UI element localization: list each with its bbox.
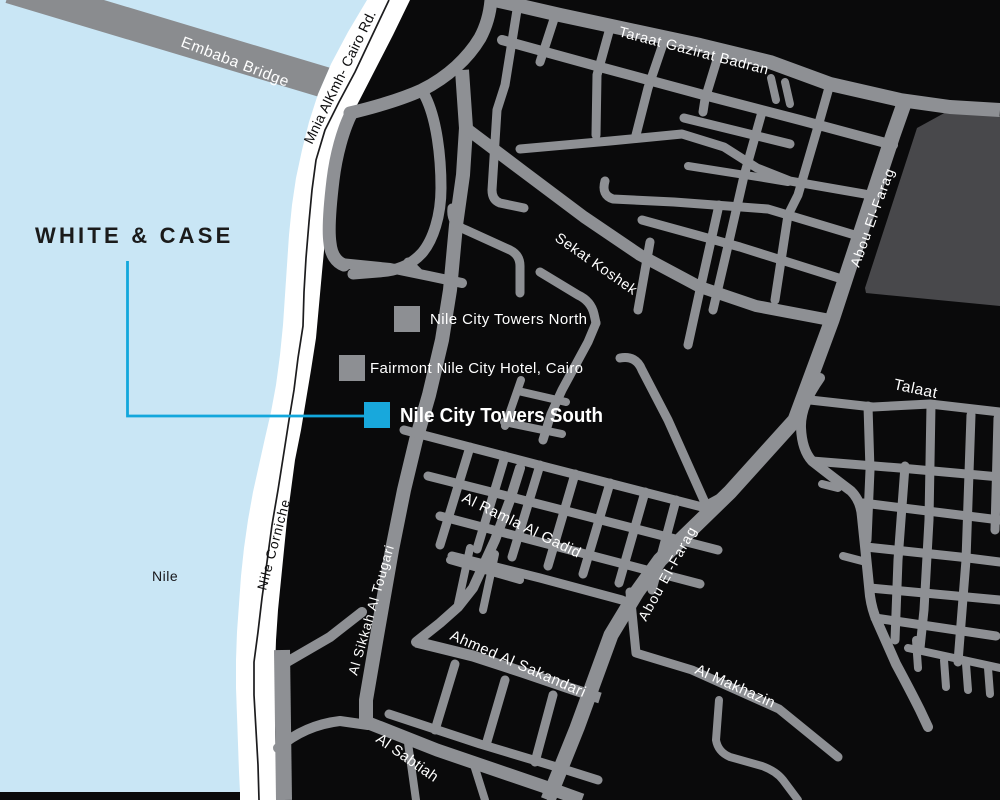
svg-text:Nile: Nile	[152, 568, 178, 584]
svg-text:WHITE & CASE: WHITE & CASE	[35, 223, 234, 248]
svg-text:Fairmont Nile City Hotel, Cair: Fairmont Nile City Hotel, Cairo	[370, 360, 583, 377]
svg-text:Nile City Towers South: Nile City Towers South	[400, 405, 603, 427]
svg-text:Nile City Towers North: Nile City Towers North	[430, 311, 587, 328]
